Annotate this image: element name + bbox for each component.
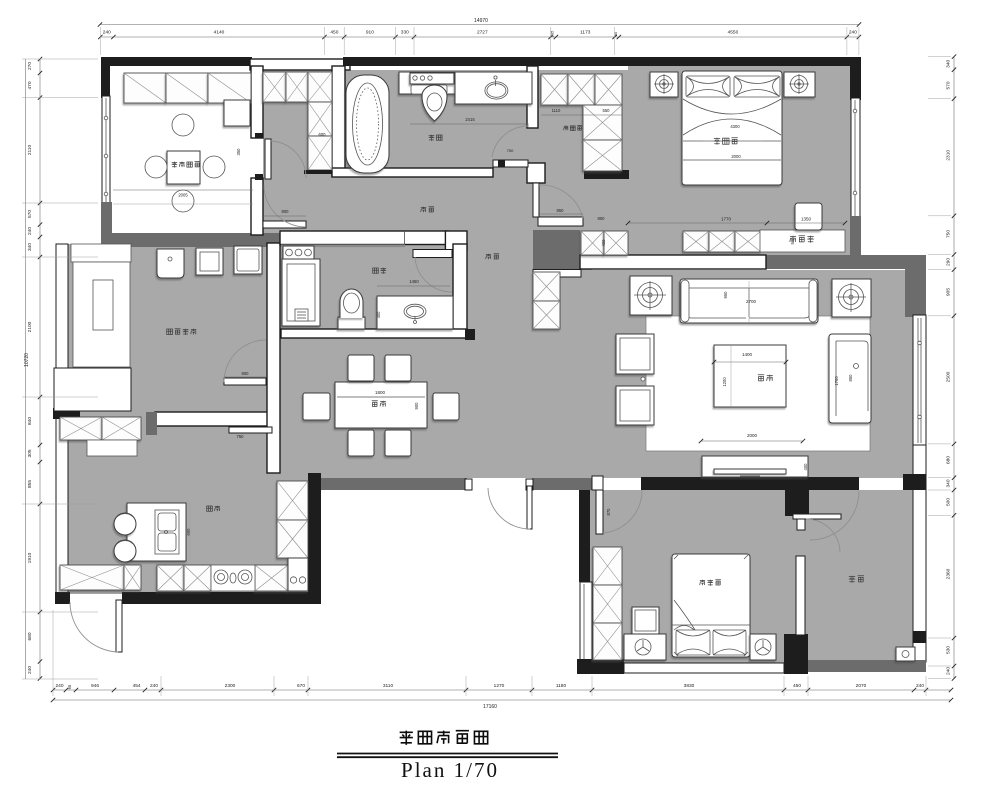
svg-text:500: 500 [946,498,952,506]
svg-text:2110: 2110 [27,145,33,156]
svg-text:1910: 1910 [27,552,33,563]
svg-text:680: 680 [27,632,33,640]
svg-text:85: 85 [613,31,618,36]
svg-text:570: 570 [27,210,33,218]
svg-text:105: 105 [549,30,554,37]
svg-text:450: 450 [330,30,338,36]
svg-text:750: 750 [507,148,514,153]
svg-text:946: 946 [91,683,99,689]
svg-text:240: 240 [150,683,158,689]
svg-text:600: 600 [186,528,191,536]
svg-text:950: 950 [723,291,728,299]
svg-text:2005: 2005 [178,193,188,198]
svg-text:2500: 2500 [946,371,952,382]
svg-text:400: 400 [803,463,808,471]
svg-text:17160: 17160 [483,704,497,710]
svg-text:400: 400 [376,311,381,318]
svg-text:570: 570 [946,81,952,89]
svg-text:900: 900 [414,402,419,410]
svg-text:1770: 1770 [721,217,732,222]
svg-text:750: 750 [946,230,952,238]
svg-text:2100: 2100 [27,321,33,332]
svg-text:470: 470 [27,81,33,89]
svg-text:530: 530 [946,646,952,654]
svg-text:240: 240 [946,667,952,675]
svg-text:2310: 2310 [946,150,952,161]
svg-text:600: 600 [319,132,327,137]
svg-text:910: 910 [366,30,374,36]
svg-text:4300: 4300 [730,124,740,129]
svg-text:2000: 2000 [747,433,758,438]
svg-text:270: 270 [27,62,33,70]
svg-text:670: 670 [297,683,305,689]
svg-text:850: 850 [557,208,565,213]
svg-text:840: 840 [27,417,33,425]
svg-text:800: 800 [282,209,290,214]
svg-text:1270: 1270 [494,683,505,689]
svg-text:240: 240 [916,683,924,689]
svg-text:305: 305 [27,449,33,457]
svg-text:3110: 3110 [383,683,394,689]
svg-text:800: 800 [598,216,606,221]
svg-text:290: 290 [946,258,952,266]
svg-text:2300: 2300 [225,683,236,689]
svg-text:340: 340 [27,243,33,251]
svg-text:870: 870 [606,508,611,516]
svg-text:680: 680 [946,456,952,464]
svg-text:340: 340 [946,479,952,487]
svg-text:1110: 1110 [552,108,561,113]
svg-text:454: 454 [133,683,141,689]
svg-text:330: 330 [401,30,409,36]
svg-text:340: 340 [946,59,952,67]
svg-text:550: 550 [603,108,611,113]
svg-text:850: 850 [848,374,853,382]
svg-text:2415: 2415 [465,117,475,122]
svg-text:2727: 2727 [477,30,488,36]
svg-text:65: 65 [67,684,72,689]
svg-text:Plan 1/70: Plan 1/70 [401,758,499,782]
svg-text:240: 240 [55,683,63,689]
svg-text:1400: 1400 [742,352,753,357]
svg-text:240: 240 [27,227,33,235]
svg-text:240: 240 [103,30,111,36]
svg-text:10720: 10720 [24,353,30,367]
svg-text:450: 450 [793,683,801,689]
svg-text:1200: 1200 [722,377,727,387]
svg-text:3830: 3830 [684,683,695,689]
svg-text:4140: 4140 [214,30,225,36]
svg-text:2000: 2000 [731,154,741,159]
svg-text:1700: 1700 [834,376,839,386]
svg-text:905: 905 [946,288,952,296]
svg-text:750: 750 [237,434,245,439]
svg-text:2700: 2700 [746,299,757,304]
svg-text:350: 350 [236,148,241,156]
svg-text:400: 400 [601,239,606,247]
svg-text:2360: 2360 [946,568,952,579]
svg-text:800: 800 [242,371,250,376]
svg-text:2070: 2070 [856,683,867,689]
svg-text:855: 855 [27,480,33,488]
svg-text:1800: 1800 [375,390,386,395]
svg-text:1173: 1173 [580,30,591,36]
svg-text:4550: 4550 [728,30,739,36]
svg-text:1450: 1450 [409,279,419,284]
svg-text:240: 240 [27,666,33,674]
svg-text:1180: 1180 [556,683,567,689]
svg-text:14970: 14970 [474,18,488,24]
svg-text:1350: 1350 [801,217,812,222]
svg-text:240: 240 [849,30,857,36]
